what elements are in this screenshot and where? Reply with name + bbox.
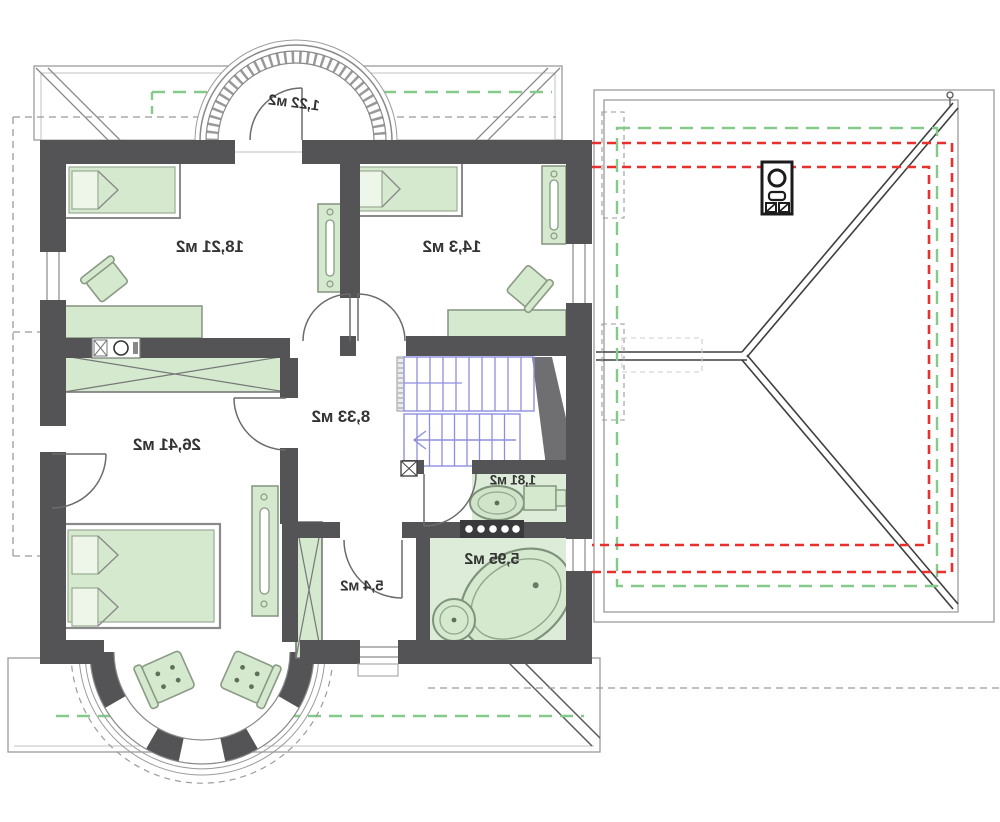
chimney xyxy=(762,162,792,214)
room-area-label-bedroom-top-right: 14,3 м2 xyxy=(423,237,481,257)
room-area-label-bedroom-top-left: 18,21 м2 xyxy=(176,237,244,257)
bed xyxy=(350,162,462,216)
room-area-label-hall: 8,33 м2 xyxy=(312,407,370,427)
window xyxy=(566,244,592,303)
room-area-label-dressing: 5,4 м2 xyxy=(340,578,383,595)
dresser xyxy=(252,486,278,616)
floor-plan-drawing xyxy=(0,0,1000,822)
wardrobe xyxy=(296,522,322,658)
garage-roof xyxy=(594,90,994,622)
window xyxy=(566,539,592,571)
bay-window xyxy=(72,652,333,783)
bathroom-sink xyxy=(433,599,475,641)
balcony-door-opening xyxy=(235,140,302,164)
balcony-structure xyxy=(195,40,397,141)
cabinet xyxy=(318,204,342,292)
bed xyxy=(64,162,180,218)
wc-cabinet xyxy=(524,486,566,510)
room-area-label-bedroom-bottom-left: 26,41 м2 xyxy=(133,435,201,455)
room-area-label-wc: 1,81 м2 xyxy=(490,473,536,488)
wardrobe xyxy=(64,356,286,392)
floor-plan-canvas: 1,22 м2 18,21 м2 14,3 м2 8,33 м2 26,41 м… xyxy=(0,0,1000,822)
window xyxy=(40,252,66,300)
double-bed xyxy=(62,524,220,628)
desk xyxy=(64,306,202,338)
cabinet xyxy=(542,166,566,244)
room-area-label-bathroom: 5,95 м2 xyxy=(465,551,520,569)
desk xyxy=(448,310,566,340)
window xyxy=(358,640,398,676)
radiator xyxy=(460,520,524,538)
sink-unit xyxy=(92,338,140,358)
stair-post xyxy=(401,461,417,476)
wc-sink xyxy=(470,486,524,520)
